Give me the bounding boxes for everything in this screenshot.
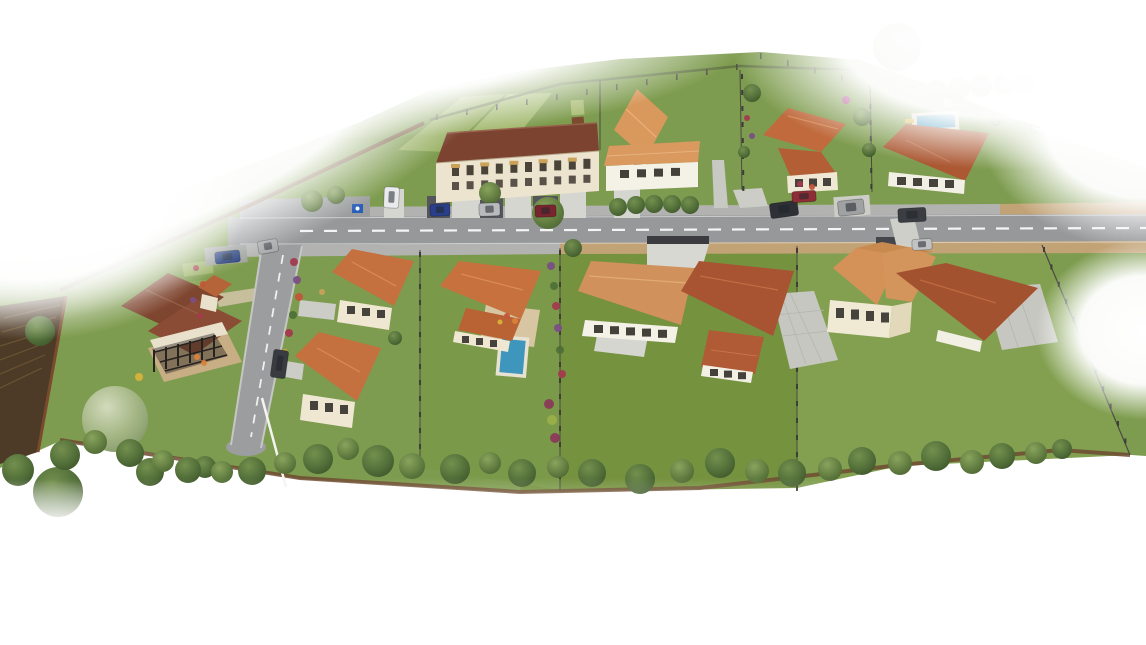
flower-bush-icon [547,415,557,425]
tree-canopy [888,451,912,475]
car-glass [778,204,790,214]
windows-item [897,177,906,185]
fence-posts-item [559,442,561,447]
fence-posts-item [1050,264,1052,269]
windows-item [377,310,385,318]
fence-posts-item [742,122,744,127]
tree-canopy [989,443,1015,469]
tree-icon [479,452,501,474]
flower-bush-icon [289,311,297,319]
fence-posts-item [419,300,421,305]
fence-posts [796,248,798,491]
fence-posts-item [742,138,744,143]
car-glass [541,207,550,214]
silver-van-icon [837,199,864,217]
fence-posts-item [741,90,743,95]
house-top-long [604,141,700,191]
windows-item [654,169,663,177]
windows-item [594,325,603,333]
flower-bush-icon [558,370,566,378]
tree-canopy [274,452,296,474]
tree-canopy [960,450,984,474]
windows-item [738,372,746,379]
fence-posts-item [741,106,743,111]
flower-bush-icon [135,373,143,381]
flower-bush-icon [201,360,207,366]
tree-icon [388,331,402,345]
fence-posts-item [796,282,798,287]
car-glass [388,191,395,203]
flower-bush-icon [293,276,301,284]
fence-posts-item [419,380,421,385]
fence-posts-item [419,412,421,417]
flower-bush-icon [809,184,815,190]
fence-posts-item [796,401,798,406]
pergola-posts-item [177,344,179,366]
windows-item [510,179,517,187]
windows-item [347,306,355,314]
windows-item [467,181,474,189]
tree-canopy [663,195,681,213]
fence-posts-item [559,282,561,287]
flower-bush-icon [504,313,510,319]
fence-posts-item [742,170,744,175]
tree-canopy [738,146,750,158]
tree-icon [274,452,296,474]
fence-posts-item [1117,421,1119,426]
fence-posts-item [870,184,872,189]
tree-icon [116,439,144,467]
tree-icon [627,196,645,214]
fence-posts-item [870,168,872,173]
flower-bush-icon [194,354,200,360]
windows-item [583,175,590,183]
windows-item [866,311,874,321]
tree-icon [681,196,699,214]
flower-bush-icon [190,297,196,303]
windows-item [540,177,547,185]
windows-item [945,180,954,188]
fence-posts-item [796,418,798,423]
fence-posts-item [419,268,421,273]
car-glass [436,206,444,213]
tree-icon [50,440,80,470]
flower-bush-icon [556,346,564,354]
tree-canopy [116,439,144,467]
windows-item [710,369,718,376]
flower-bush-icon [554,324,562,332]
fence-posts-item [796,452,798,457]
windows-item [525,162,532,172]
awnings-item [509,161,518,165]
tree-canopy [705,448,735,478]
flower-bush-icon [295,293,303,301]
windows-item [340,405,348,414]
windows-item [310,401,318,410]
tree-icon [645,195,663,213]
tree-canopy [1025,442,1047,464]
fence-posts-item [419,396,421,401]
tree-icon [848,447,876,475]
fence-posts-item [796,384,798,389]
tree-canopy [83,430,107,454]
fence-posts-item [559,410,561,415]
tree-icon [609,198,627,216]
flower-bush-icon [550,282,558,290]
fence-posts-item [419,444,421,449]
tree-canopy [479,452,501,474]
fence-posts-item [559,298,561,303]
windows-item [490,340,497,347]
fence-posts-item [419,252,421,257]
tree-canopy [547,456,569,478]
windows-item [836,308,844,318]
car-glass [918,241,926,247]
house-rowhouse [436,123,599,203]
tree-icon [152,450,174,472]
fence-posts-item [559,362,561,367]
windows-item [496,164,503,174]
fence-posts-item [796,435,798,440]
car-glass [845,202,856,211]
windows-item [554,176,561,184]
fence-posts-item [559,266,561,271]
tree-icon [738,146,750,158]
crosswalk-band [647,236,709,244]
fence-posts-item [559,250,561,255]
flower-bush-icon [547,262,555,270]
tree-icon [362,445,394,477]
windows-item [851,310,859,320]
tree-canopy [681,196,699,214]
silver-car-icon [912,238,933,250]
flower-bush-icon [552,302,560,310]
windows-item [452,182,459,190]
tree-icon [547,456,569,478]
tree-icon [399,453,425,479]
tree-icon [989,443,1015,469]
fence-posts-item [559,314,561,319]
fence-posts-item [419,348,421,353]
tree-canopy [479,182,501,204]
fence-posts-item [796,265,798,270]
awnings-item [480,162,489,166]
windows-item [671,168,680,176]
tree-icon [960,450,984,474]
silver-car-icon [479,203,500,217]
tree-canopy [337,438,359,460]
fence-posts-item [419,332,421,337]
pergola-posts-item [153,350,155,372]
windows-item [476,338,483,345]
windows-item [637,169,646,177]
windows-item [913,178,922,186]
flower-bush-icon [744,115,750,121]
fence-posts-item [1124,438,1126,443]
tree-canopy [1052,439,1072,459]
fence-posts-item [742,186,744,191]
blue-car-icon [430,204,450,217]
fence-posts-item [559,378,561,383]
windows-item [823,178,831,186]
tree-canopy [609,198,627,216]
flower-bush-icon [797,181,803,187]
tree-icon [663,195,681,213]
flower-bush-icon [512,318,518,324]
windows-item [929,179,938,187]
site-plan-canvas [0,0,1146,645]
windows-item [724,371,732,378]
pergola-posts-item [201,338,203,360]
fence-posts-item [1043,247,1045,252]
tree-canopy [921,441,951,471]
tree-canopy [645,195,663,213]
windows-item [462,336,469,343]
tree-canopy [564,239,582,257]
fence-posts [559,250,561,479]
tree-canopy [362,445,394,477]
windows-item [569,176,576,184]
wall [606,162,698,191]
awnings-item [539,159,548,163]
tree-icon [888,451,912,475]
pergola-posts-item [165,347,167,369]
flower-bush-icon [544,399,554,409]
tree-icon [83,430,107,454]
flower-bush-icon [498,320,503,325]
windows-item [554,160,561,170]
tree-canopy [627,196,645,214]
windows-item [610,326,619,334]
tree-canopy [399,453,425,479]
tree-icon [479,182,501,204]
fence-posts-item [559,394,561,399]
windows-item [525,178,532,186]
windows-item [642,329,651,337]
windows-item [658,330,667,338]
flower-bush-icon [749,133,755,139]
flower-bush-icon [319,289,325,295]
tree-icon [1052,439,1072,459]
pergola-posts-item [213,335,215,357]
awnings-item [568,158,577,162]
site-plan-rendering [0,0,1146,645]
awnings-item [451,164,460,168]
windows-item [881,313,889,323]
gray-car-icon [898,207,927,222]
tree-canopy [848,447,876,475]
flower-bush-icon [550,433,560,443]
tree-icon [818,457,842,481]
tree-canopy [152,450,174,472]
car-glass [485,205,494,212]
fence-posts-item [559,426,561,431]
tree-canopy [818,457,842,481]
tree-icon [564,239,582,257]
dark-red-car-icon [535,205,556,218]
windows-item [362,308,370,316]
pergola-posts-item [189,341,191,363]
tree-canopy [388,331,402,345]
tree-canopy [50,440,80,470]
fence-posts-item [419,284,421,289]
flower-bush-icon [197,313,203,319]
tree-icon [1025,442,1047,464]
tree-icon [921,441,951,471]
windows-item [620,170,629,178]
windows-item [626,327,635,335]
red-car-icon [792,190,817,203]
car-glass [906,211,918,219]
fence-posts-item [419,364,421,369]
tree-canopy [303,444,333,474]
windows-item [325,403,333,412]
tree-icon [303,444,333,474]
car-glass [799,193,809,200]
fence-posts-item [419,428,421,433]
windows-item [583,159,590,169]
fence-posts-item [796,248,798,253]
flower-bush-icon [285,329,293,337]
windows-item [467,165,474,175]
fence-posts-item [419,316,421,321]
tree-icon [337,438,359,460]
flower-bush-icon [290,258,298,266]
tree-icon [705,448,735,478]
